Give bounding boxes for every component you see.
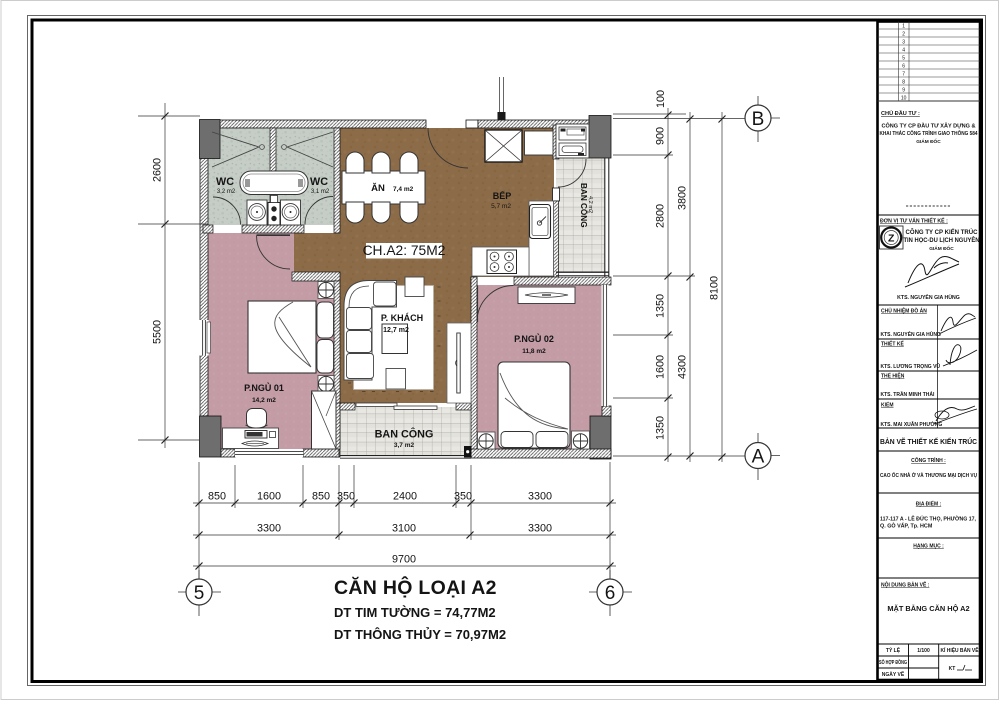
svg-text:WC: WC	[216, 176, 234, 188]
svg-text:1600: 1600	[257, 491, 281, 503]
svg-text:B: B	[752, 109, 765, 130]
svg-text:7,4 m2: 7,4 m2	[393, 186, 414, 193]
svg-text:3,2 m2: 3,2 m2	[217, 189, 236, 195]
svg-text:8: 8	[902, 79, 905, 85]
svg-text:TỶ LỆ: TỶ LỆ	[886, 646, 901, 654]
svg-text:ĂN: ĂN	[371, 183, 385, 194]
svg-text:CAO ỐC NHÀ Ở VÀ THƯƠNG MẠI DỊC: CAO ỐC NHÀ Ở VÀ THƯƠNG MẠI DỊCH VỤ	[880, 472, 977, 479]
svg-text:KTS. MAI XUÂN PHƯỞNG: KTS. MAI XUÂN PHƯỞNG	[881, 421, 943, 428]
svg-text:5,7 m2: 5,7 m2	[491, 203, 511, 210]
svg-text:KHAI THÁC CÔNG TRÌNH GIAO THÔN: KHAI THÁC CÔNG TRÌNH GIAO THÔNG 584	[880, 129, 979, 137]
svg-text:DT TIM TƯỜNG = 74,77M2: DT TIM TƯỜNG = 74,77M2	[334, 605, 496, 620]
svg-text:850: 850	[312, 491, 330, 503]
svg-text:9: 9	[902, 87, 905, 93]
svg-text:8100: 8100	[709, 276, 721, 300]
svg-text:THIẾT KẾ: THIẾT KẾ	[881, 341, 904, 348]
svg-text:CHỦ NHIỆM ĐỒ ÁN: CHỦ NHIỆM ĐỒ ÁN	[881, 307, 927, 315]
svg-text:350: 350	[454, 491, 472, 503]
svg-text:KTS. TRẦN MINH THÁI: KTS. TRẦN MINH THÁI	[881, 391, 935, 398]
svg-text:1350: 1350	[655, 294, 667, 318]
svg-text:2: 2	[902, 31, 905, 37]
svg-text:NỘI DUNG BẢN VẼ :: NỘI DUNG BẢN VẼ :	[881, 581, 930, 589]
svg-text:7: 7	[902, 71, 905, 77]
svg-text:900: 900	[655, 127, 667, 145]
svg-text:3,7 m2: 3,7 m2	[394, 442, 415, 449]
svg-text:CÔNG TRÌNH :: CÔNG TRÌNH :	[911, 456, 946, 464]
svg-text:CĂN HỘ LOẠI A2: CĂN HỘ LOẠI A2	[334, 575, 497, 599]
svg-text:Q. GÒ VẤP, Tp. HCM: Q. GÒ VẤP, Tp. HCM	[880, 522, 933, 530]
svg-text:117-117 A - LÊ ĐỨC THỌ, PHƯỜNG: 117-117 A - LÊ ĐỨC THỌ, PHƯỜNG 17,	[880, 515, 976, 523]
svg-text:2800: 2800	[655, 204, 667, 228]
svg-text:14,2 m2: 14,2 m2	[252, 397, 276, 404]
svg-text:3100: 3100	[392, 523, 416, 535]
svg-text:2400: 2400	[393, 491, 417, 503]
svg-text:6: 6	[605, 583, 616, 604]
svg-text:KT: KT	[949, 666, 956, 672]
svg-text:WC: WC	[310, 176, 328, 188]
svg-text:3300: 3300	[257, 523, 281, 535]
svg-text:MẶT BẰNG CĂN HỘ A2: MẶT BẰNG CĂN HỘ A2	[887, 604, 969, 613]
svg-text:TIN HỌC-DU LỊCH NGUYÊN: TIN HỌC-DU LỊCH NGUYÊN	[904, 236, 980, 244]
svg-text:A: A	[752, 446, 765, 467]
svg-text:KTS. NGUYỄN GIA HÙNG: KTS. NGUYỄN GIA HÙNG	[897, 294, 960, 301]
svg-text:NGÀY VẼ: NGÀY VẼ	[882, 671, 905, 678]
svg-text:DT THÔNG THỦY = 70,97M2: DT THÔNG THỦY = 70,97M2	[334, 627, 506, 642]
svg-text:4: 4	[902, 47, 905, 53]
svg-text:GIÁM ĐỐC: GIÁM ĐỐC	[929, 245, 954, 252]
svg-text:3: 3	[902, 39, 905, 45]
svg-text:3,1 m2: 3,1 m2	[311, 189, 330, 195]
svg-text:1: 1	[902, 23, 905, 29]
svg-text:CÔNG TY CP ĐẦU TƯ XÂY DỰNG &: CÔNG TY CP ĐẦU TƯ XÂY DỰNG &	[882, 122, 976, 130]
svg-text:3300: 3300	[528, 523, 552, 535]
svg-text:P.NGỦ 01: P.NGỦ 01	[244, 382, 284, 393]
svg-text:850: 850	[208, 491, 226, 503]
svg-text:5500: 5500	[152, 320, 164, 344]
svg-text:350: 350	[337, 491, 355, 503]
svg-text:BẢN VẼ THIẾT KẾ KIẾN TRÚC: BẢN VẼ THIẾT KẾ KIẾN TRÚC	[880, 436, 978, 446]
svg-text:10: 10	[901, 95, 907, 101]
svg-text:Z: Z	[888, 233, 895, 245]
svg-text:1350: 1350	[655, 416, 667, 440]
svg-text:CHỦ ĐẦU TƯ :: CHỦ ĐẦU TƯ :	[881, 110, 920, 117]
svg-text:BẾP: BẾP	[493, 191, 512, 201]
svg-text:5: 5	[194, 583, 205, 604]
svg-text:CH.A2: 75M2: CH.A2: 75M2	[363, 243, 446, 258]
svg-text:BAN CÔNG: BAN CÔNG	[375, 428, 434, 441]
svg-text:KTS. NGUYỄN GIA HÙNG: KTS. NGUYỄN GIA HÙNG	[881, 331, 941, 338]
svg-text:THỂ HIỆN: THỂ HIỆN	[881, 372, 905, 380]
svg-text:ĐƠN VỊ TƯ VẤN THIẾT KẾ :: ĐƠN VỊ TƯ VẤN THIẾT KẾ :	[880, 218, 948, 225]
svg-text:P.NGỦ 02: P.NGỦ 02	[514, 333, 554, 344]
svg-text:9700: 9700	[392, 554, 416, 566]
svg-text:4300: 4300	[677, 355, 689, 379]
svg-text:11,8 m2: 11,8 m2	[522, 348, 546, 355]
svg-text:P. KHÁCH: P. KHÁCH	[381, 313, 423, 323]
svg-text:5: 5	[902, 55, 905, 61]
svg-text:3800: 3800	[677, 186, 689, 210]
svg-text:2600: 2600	[152, 158, 164, 182]
svg-text:12,7 m2: 12,7 m2	[383, 327, 409, 334]
svg-text:KTS. LƯƠNG TRỌNG VŨ: KTS. LƯƠNG TRỌNG VŨ	[881, 363, 941, 370]
svg-text:GIÁM ĐỐC: GIÁM ĐỐC	[916, 138, 941, 145]
svg-text:ĐỊA ĐIỂM :: ĐỊA ĐIỂM :	[916, 501, 942, 508]
svg-text:4,2 m2: 4,2 m2	[587, 196, 593, 213]
svg-text:100: 100	[655, 90, 667, 108]
svg-text:CÔNG TY CP KIẾN TRÚC: CÔNG TY CP KIẾN TRÚC	[906, 228, 979, 236]
svg-text:3300: 3300	[528, 491, 552, 503]
svg-text:KÍ HIỆU BẢN VẼ: KÍ HIỆU BẢN VẼ	[941, 646, 980, 654]
svg-text:HẠNG MỤC :: HẠNG MỤC :	[913, 544, 944, 550]
svg-text:KIỂM: KIỂM	[881, 402, 894, 409]
svg-text:6: 6	[902, 63, 905, 69]
svg-text:1/100: 1/100	[917, 648, 930, 654]
svg-text:SỐ HỢP ĐỒNG: SỐ HỢP ĐỒNG	[879, 659, 907, 666]
svg-text:1600: 1600	[655, 355, 667, 379]
